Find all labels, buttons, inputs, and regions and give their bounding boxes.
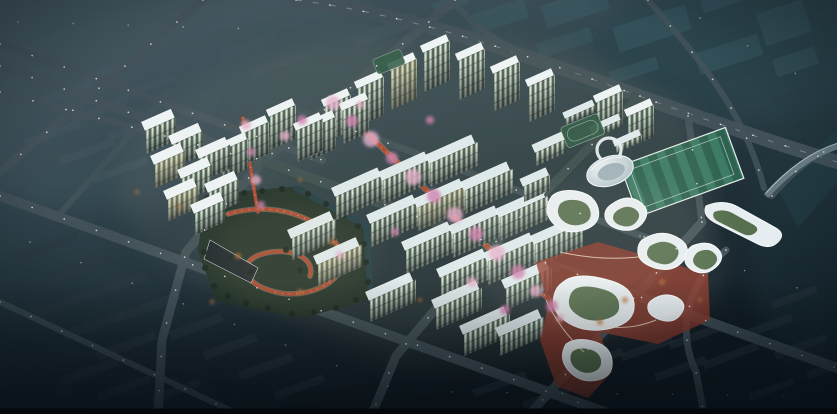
aerial-night-masterplan-rendering [0,0,837,414]
rendering-stage [0,0,837,414]
vignette [0,0,837,414]
lighting-effects [0,0,837,414]
bottom-letterbox [0,409,837,414]
